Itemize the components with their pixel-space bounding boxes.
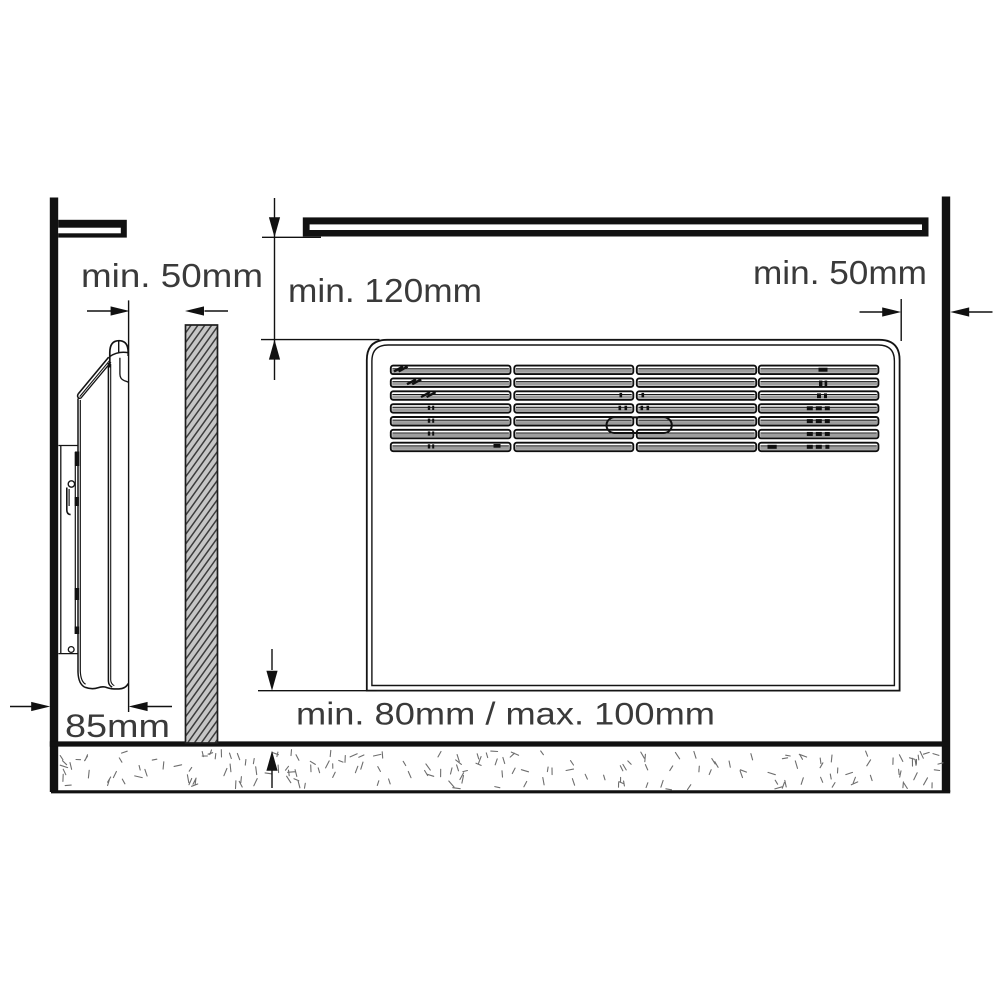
svg-text:85mm: 85mm xyxy=(65,708,170,744)
svg-text:min. 50mm: min. 50mm xyxy=(753,255,927,292)
svg-text:min. 50mm: min. 50mm xyxy=(81,258,263,295)
svg-text:min. 120mm: min. 120mm xyxy=(288,273,482,310)
svg-text:min. 80mm / max. 100mm: min. 80mm / max. 100mm xyxy=(296,696,715,732)
